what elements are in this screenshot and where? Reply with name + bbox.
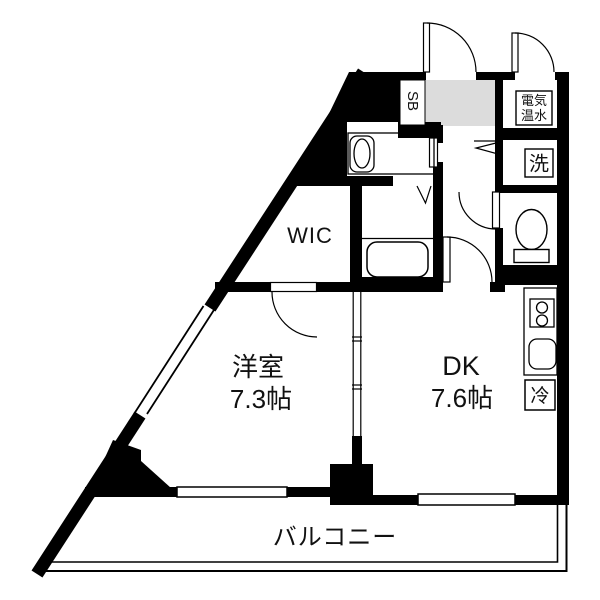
walls: [37, 72, 569, 574]
wall-bottom-west-left: [85, 487, 177, 497]
dk-door-leaf: [443, 237, 450, 282]
dk-door-swing: [447, 237, 492, 282]
washbasin-bowl: [354, 139, 370, 168]
room-partition-sliding-doors: [352, 292, 362, 436]
wall-partition-bottom: [352, 436, 362, 466]
floor-plan: SB: [0, 0, 600, 600]
bathtub: [367, 242, 428, 277]
dk-window: [418, 494, 515, 505]
wall-bottom-dk-right: [515, 495, 569, 505]
floor-plan-page: SB: [0, 0, 600, 600]
washer-opening-mark: [474, 141, 497, 154]
bath-door-mark: [417, 186, 431, 203]
wall-toilet-bottom: [495, 265, 569, 285]
diagonal-window-outer-line: [134, 306, 204, 414]
wic-door-swing: [272, 292, 317, 337]
toilet-door-swing: [459, 192, 496, 229]
wall-mid-center: [317, 282, 350, 292]
balcony-label: バルコニー: [273, 524, 398, 551]
wall-bottom-dk-left: [362, 495, 418, 505]
western-room-size: 7.3帖: [230, 384, 292, 414]
stove-burner-2: [537, 315, 548, 326]
heater-door-leaf: [512, 33, 518, 72]
wic-door-leaf: [271, 283, 317, 292]
wall-bath-bottom: [362, 277, 443, 292]
western-room-name: 洋室: [232, 352, 284, 382]
diagonal-window-inner-line: [147, 306, 217, 414]
wall-toilet-left: [495, 228, 503, 268]
kitchen-sink: [529, 339, 556, 369]
wall-hall-left-lower: [433, 162, 443, 286]
wall-mid-left: [215, 282, 270, 292]
wall-top-mid: [476, 72, 515, 80]
washer-label: 洗: [529, 153, 549, 176]
dk-room-size: 7.6帖: [431, 383, 493, 413]
entrance-door-leaf: [424, 23, 430, 72]
toilet-bowl: [516, 210, 547, 250]
genkan-floor: [425, 80, 495, 126]
wall-bottom-west-right: [287, 487, 352, 497]
wall-mid-right: [490, 282, 505, 292]
dk-room-name: DK: [442, 351, 480, 381]
balcony: バルコニー: [40, 505, 567, 571]
wall-mass-left-of-sb: [325, 72, 400, 122]
wic-label: WIC: [287, 223, 333, 248]
wall-washer-bottom: [495, 185, 569, 193]
wall-heater-bottom: [495, 128, 569, 140]
refrigerator-label: 冷: [530, 385, 549, 407]
heater-door-swing: [515, 33, 554, 72]
water-heater-label-line2: 温水: [521, 108, 547, 123]
wall-heater-left: [495, 80, 503, 128]
stove-burner-1: [537, 302, 548, 313]
entrance-door-swing: [427, 23, 476, 72]
western-room-window: [177, 487, 287, 497]
toilet-tank: [514, 250, 549, 263]
toilet-door-leaf: [493, 192, 500, 228]
wall-wic-bath: [350, 176, 362, 292]
water-heater-label-line1: 電気: [521, 93, 547, 108]
shoe-box-label: SB: [404, 91, 421, 111]
